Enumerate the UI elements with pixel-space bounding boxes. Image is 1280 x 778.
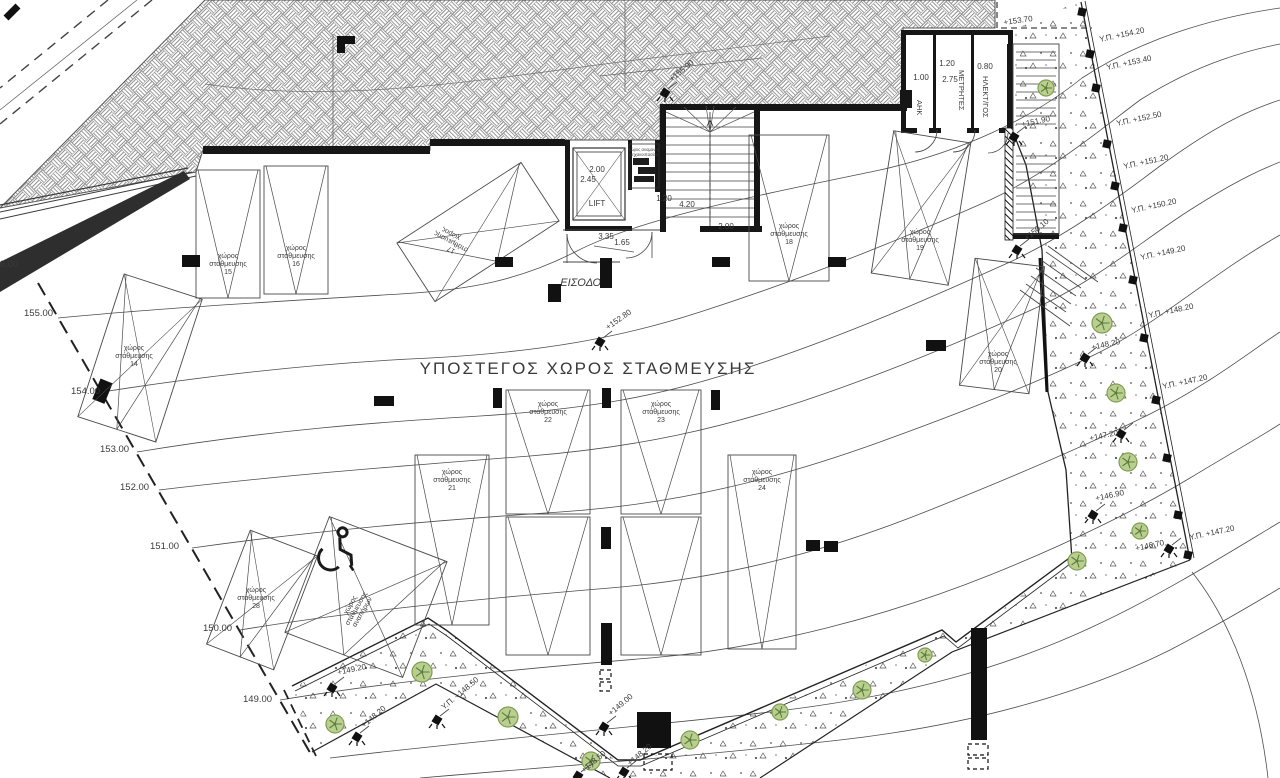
wheelchair-foot xyxy=(349,565,355,570)
parking-space-label: χώρος xyxy=(651,400,672,408)
wheelchair-body xyxy=(333,538,359,566)
wheelchair-wheel xyxy=(315,548,342,572)
contour-label: 152.00 xyxy=(120,482,149,493)
tree-icon xyxy=(412,662,432,682)
contour-label: 156.00 xyxy=(0,259,18,270)
room-label: ΑΗΚ xyxy=(915,100,924,115)
lamp-body xyxy=(431,714,442,725)
plot-boundary-dashed xyxy=(38,283,312,756)
parking-space-label: χώρος xyxy=(779,222,800,230)
boundary-level-label: Υ.Π. +151.20 xyxy=(1123,152,1170,170)
parking-space-label: χώρος xyxy=(538,400,559,408)
parking-space-label: 21 xyxy=(448,485,456,492)
tree-center xyxy=(779,711,782,714)
tree-center xyxy=(689,739,692,742)
parking-space-marking xyxy=(198,170,258,298)
column xyxy=(637,712,671,748)
parking-space-label: στάθμευσης xyxy=(642,408,680,416)
lamp-icon xyxy=(592,331,612,351)
wall-segment xyxy=(1007,44,1013,128)
wall-segment xyxy=(967,128,979,133)
boundary-level-label: Υ.Π. +153.40 xyxy=(1106,53,1153,71)
tree-center xyxy=(1045,87,1048,90)
column xyxy=(711,390,720,410)
dimension-label: 2.75 xyxy=(942,75,958,84)
tree-icon xyxy=(1107,384,1125,402)
boundary-level-label: Υ.Π. +147.20 xyxy=(1189,523,1236,541)
column xyxy=(495,257,513,267)
dimension-label: 4.20 xyxy=(679,200,695,209)
door-arc xyxy=(626,232,652,258)
boundary-level-label: Υ.Π. +154.20 xyxy=(1099,25,1146,43)
parking-space-label: στάθμευσης xyxy=(979,358,1017,366)
lift-label: LIFT xyxy=(589,199,606,208)
lamp-legs xyxy=(1009,254,1025,259)
fence-post xyxy=(1183,550,1192,559)
wall-segment xyxy=(971,35,974,128)
parking-space-label: στάθμευσης xyxy=(529,408,567,416)
machine-room-label: μηχανοστασίου xyxy=(630,152,659,157)
machinery-icon xyxy=(634,176,654,182)
wall-segment xyxy=(203,146,430,154)
tree-icon xyxy=(1119,453,1137,471)
tree-center xyxy=(1101,322,1104,325)
roof-edge-dashed xyxy=(600,670,611,679)
parking-space-label: χώρος xyxy=(246,586,267,594)
page-title: ΥΠΟΣΤΕΓΟΣ ΧΩΡΟΣ ΣΤΑΘΜΕΥΣΗΣ xyxy=(420,359,757,378)
parking-space-label: 28 xyxy=(252,603,260,610)
fence-post xyxy=(1162,453,1171,462)
parking-space-label: 20 xyxy=(994,367,1002,374)
parking-space-marking xyxy=(266,166,326,294)
lamp-legs xyxy=(596,731,612,736)
parking-space-marking xyxy=(871,131,971,285)
column xyxy=(600,258,612,288)
tree-icon xyxy=(681,731,699,749)
tree-icon xyxy=(326,715,344,733)
parking-space-label: 18 xyxy=(785,239,793,246)
lamp-legs xyxy=(592,346,608,351)
lamp-body xyxy=(594,336,605,347)
wall-segment xyxy=(565,140,570,231)
wall-segment xyxy=(901,30,906,133)
wall-segment xyxy=(760,104,907,111)
tree-center xyxy=(1115,392,1118,395)
tree-center xyxy=(1139,530,1142,533)
tree-icon xyxy=(918,648,932,662)
lamp-legs xyxy=(429,724,445,729)
tree-center xyxy=(334,723,337,726)
column xyxy=(824,541,838,552)
wheelchair-icon xyxy=(315,523,365,577)
roof-edge-dashed xyxy=(968,744,988,755)
tree-center xyxy=(924,654,927,657)
contour-label: 153.00 xyxy=(100,444,129,455)
parking-space-marking xyxy=(751,135,827,281)
dimension-label: 0.80 xyxy=(977,62,993,71)
parking-space-19 xyxy=(871,131,971,285)
dimension-label: 2.45 xyxy=(580,175,596,184)
fence-post xyxy=(1102,139,1111,148)
column xyxy=(806,540,820,551)
tree-icon xyxy=(1068,552,1086,570)
wheelchair-head xyxy=(337,527,348,538)
wall-segment xyxy=(933,35,936,128)
site-plan-page: ΥΠΟΣΤΕΓΟΣ ΧΩΡΟΣ ΣΤΑΘΜΕΥΣΗΣ ΕΙΣΟΔΟΣ LIFT … xyxy=(0,0,1280,778)
lift-diagonals xyxy=(573,148,625,220)
parking-space-label: 23 xyxy=(657,417,665,424)
wall-segment xyxy=(660,104,760,110)
lamp-body xyxy=(351,731,362,742)
tree-center xyxy=(421,671,424,674)
tree-icon xyxy=(853,681,871,699)
dimension-label: 1.20 xyxy=(939,59,955,68)
column xyxy=(374,396,394,406)
room-label: ΗΛΕΚΤ/ΓΟΣ xyxy=(981,76,990,118)
parking-space-label: χώρος xyxy=(218,252,239,260)
fence-post xyxy=(1139,333,1148,342)
roof-edge-dashed xyxy=(968,758,988,769)
parking-space-label: στάθμευσης xyxy=(209,260,247,268)
parking-space-16 xyxy=(264,166,328,294)
tree-icon xyxy=(1092,313,1112,333)
tree-icon xyxy=(772,704,788,720)
parking-space-17 xyxy=(397,162,559,301)
tree-icon xyxy=(1132,523,1148,539)
parking-space xyxy=(506,517,590,655)
lamp-icon xyxy=(1009,239,1029,259)
contour-label: 154.00 xyxy=(71,386,100,397)
parking-space-label: χώρος xyxy=(910,228,931,236)
dimension-label: 2.00 xyxy=(718,222,734,231)
parking-space-label: χώρος xyxy=(286,244,307,252)
fence-post xyxy=(1085,49,1094,58)
contour-line xyxy=(1192,572,1268,778)
lamp-body xyxy=(598,721,609,732)
fence-post xyxy=(1151,395,1160,404)
corner-mark xyxy=(6,6,18,18)
parking-space-label: στάθμευσης xyxy=(770,230,808,238)
tree-center xyxy=(507,716,510,719)
wall-segment xyxy=(430,139,565,146)
machinery-icon xyxy=(633,158,649,165)
contour-label: 150.00 xyxy=(203,623,232,634)
parking-space-label: 14 xyxy=(130,361,138,368)
dimension-label: 1.00 xyxy=(913,73,929,82)
parking-space-label: στάθμευσης xyxy=(901,236,939,244)
column xyxy=(712,257,730,267)
lamp-icon xyxy=(596,716,616,736)
parking-space-label: χώρος xyxy=(988,350,1009,358)
tree-icon xyxy=(1038,80,1054,96)
tree-center xyxy=(1076,560,1079,563)
contour-label: 155.00 xyxy=(24,308,53,319)
parking-space-outline xyxy=(196,170,260,298)
column xyxy=(926,340,946,351)
dimension-label: 1.20 xyxy=(656,194,672,203)
parking-space-label: στάθμευσης xyxy=(115,352,153,360)
fence-post xyxy=(1118,223,1127,232)
parking-space-outline xyxy=(264,166,328,294)
parking-space-label: στάθμευσης xyxy=(743,476,781,484)
column xyxy=(493,388,502,408)
tree-icon xyxy=(498,707,518,727)
wall-segment xyxy=(660,104,666,232)
boundary-level-label: Υ.Π. +152.50 xyxy=(1116,109,1163,127)
spot-level-label: +152.80 xyxy=(604,307,633,331)
parking-space-label: 24 xyxy=(758,485,766,492)
fence-post xyxy=(1091,83,1100,92)
parking-space-label: 15 xyxy=(224,269,232,276)
lamp-body xyxy=(1011,244,1022,255)
architectural-site-plan: ΥΠΟΣΤΕΓΟΣ ΧΩΡΟΣ ΣΤΑΘΜΕΥΣΗΣ ΕΙΣΟΔΟΣ LIFT … xyxy=(0,0,1280,778)
fence-post xyxy=(1173,510,1182,519)
roof-edge-dashed xyxy=(600,682,611,691)
parking-space-15 xyxy=(196,170,260,298)
boundary-level-label: Υ.Π. +147.20 xyxy=(1162,372,1209,390)
wall-segment xyxy=(929,128,941,133)
parking-space-label: στάθμευσης xyxy=(433,476,471,484)
door-arc xyxy=(915,130,937,152)
fence-post xyxy=(1110,181,1119,190)
parking-space-label: στάθμευσης xyxy=(237,594,275,602)
column xyxy=(601,623,612,665)
dimension-label: 3.35 xyxy=(598,232,614,241)
parking-space-label: χώρος xyxy=(752,468,773,476)
parking-space-outline xyxy=(506,517,590,655)
boundary-level-label: Υ.Π. +150.20 xyxy=(1131,196,1178,214)
tree-center xyxy=(1127,461,1130,464)
parking-space-marking xyxy=(508,517,588,655)
fence-post xyxy=(1077,7,1086,16)
tree-center xyxy=(861,689,864,692)
parking-space-label: 19 xyxy=(916,245,924,252)
column xyxy=(602,388,611,408)
parking-space-outline xyxy=(749,135,829,281)
lamp-icon xyxy=(429,709,449,729)
boundary-dashed xyxy=(0,0,108,88)
room-label: ΜΕΤΡΗΤΕΣ xyxy=(957,70,966,111)
column xyxy=(337,36,355,44)
parking-space-label: στάθμευσης xyxy=(277,252,315,260)
lamp-legs xyxy=(349,741,365,746)
parking-space-label: χώρος xyxy=(442,468,463,476)
machinery-icon xyxy=(638,167,656,174)
parking-space-18 xyxy=(749,135,829,281)
spot-level-label: +149.00 xyxy=(607,692,636,718)
column xyxy=(971,628,987,740)
parking-space-20 xyxy=(959,258,1044,394)
contour-label: 151.00 xyxy=(150,541,179,552)
fence-post xyxy=(1128,275,1137,284)
boundary-level-label: Υ.Π. +148.20 xyxy=(1148,301,1195,319)
parking-space-label: 22 xyxy=(544,417,552,424)
dimension-label: 1.65 xyxy=(614,238,630,247)
wall-segment xyxy=(754,104,760,232)
parking-space-label: χώρος xyxy=(124,344,145,352)
dimension-label: 2.00 xyxy=(589,165,605,174)
parking-spaces: χώροςστάθμευσης14χώροςστάθμευσης15χώροςσ… xyxy=(78,131,1045,678)
contour-label: 149.00 xyxy=(243,694,272,705)
column xyxy=(828,257,846,267)
parking-space-label: 16 xyxy=(292,261,300,268)
column xyxy=(601,527,611,549)
column xyxy=(182,255,200,267)
boundary-level-label: Υ.Π. +149.20 xyxy=(1140,243,1187,261)
column xyxy=(548,284,561,302)
wall-segment xyxy=(900,90,912,108)
wall-segment xyxy=(901,30,1013,35)
